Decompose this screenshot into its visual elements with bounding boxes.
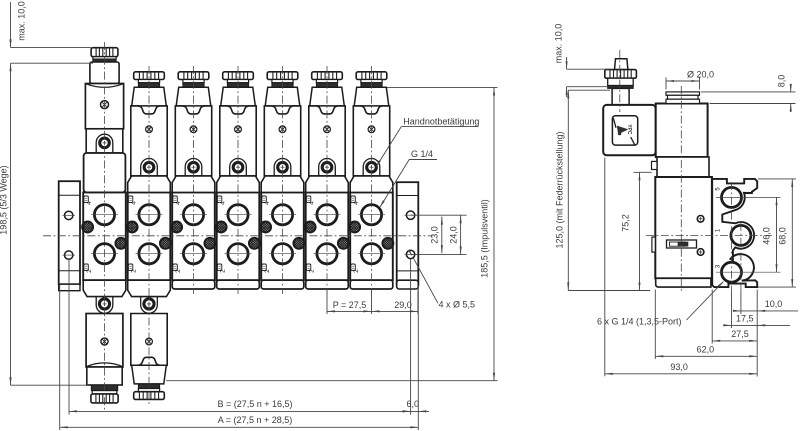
svg-text:Ø 20,0: Ø 20,0 (687, 70, 714, 80)
svg-text:4 x Ø 5,5: 4 x Ø 5,5 (439, 300, 476, 310)
svg-text:6 x G 1/4 (1,3,5-Port): 6 x G 1/4 (1,3,5-Port) (597, 317, 682, 327)
svg-text:23,0: 23,0 (430, 226, 440, 244)
svg-text:Handnotbetätigung: Handnotbetätigung (403, 116, 479, 126)
svg-text:4: 4 (308, 201, 315, 205)
svg-text:B = (27,5 n + 16,5): B = (27,5 n + 16,5) (217, 399, 292, 409)
svg-text:198,5 (5/3 Wege): 198,5 (5/3 Wege) (0, 165, 9, 234)
svg-text:4: 4 (86, 201, 93, 205)
svg-text:46,0: 46,0 (762, 227, 772, 245)
svg-text:4: 4 (353, 201, 360, 205)
svg-text:2: 2 (264, 269, 271, 273)
svg-text:6,0: 6,0 (407, 399, 420, 409)
svg-text:93,0: 93,0 (670, 362, 688, 372)
svg-text:G 1/4: G 1/4 (411, 149, 433, 159)
svg-text:4: 4 (264, 201, 271, 205)
svg-text:2: 2 (86, 269, 93, 273)
svg-text:YPC: YPC (626, 124, 632, 135)
svg-text:max. 10,0: max. 10,0 (17, 1, 27, 41)
svg-text:68,0: 68,0 (778, 227, 788, 245)
svg-text:27,5: 27,5 (731, 329, 749, 339)
svg-text:29,0: 29,0 (394, 300, 412, 310)
svg-text:4: 4 (175, 201, 182, 205)
svg-text:P = 27,5: P = 27,5 (333, 300, 367, 310)
svg-text:4: 4 (219, 201, 226, 205)
svg-text:125,0 (mit Federrückstellung): 125,0 (mit Federrückstellung) (555, 131, 565, 248)
svg-text:10,0: 10,0 (765, 299, 783, 309)
svg-text:2: 2 (130, 269, 137, 273)
svg-text:4: 4 (130, 201, 137, 205)
svg-text:62,0: 62,0 (697, 345, 715, 355)
svg-text:24,0: 24,0 (448, 226, 458, 244)
svg-text:2: 2 (308, 269, 315, 273)
svg-text:max. 10,0: max. 10,0 (554, 24, 564, 64)
svg-text:75,2: 75,2 (621, 214, 631, 232)
svg-text:185,5 (Impulsventil): 185,5 (Impulsventil) (480, 199, 490, 278)
svg-text:17,5: 17,5 (736, 314, 754, 324)
svg-text:2: 2 (353, 269, 360, 273)
svg-text:8,0: 8,0 (777, 75, 787, 88)
svg-text:2: 2 (219, 269, 226, 273)
svg-text:2: 2 (175, 269, 182, 273)
svg-text:A = (27,5 n + 28,5): A = (27,5 n + 28,5) (218, 415, 293, 425)
